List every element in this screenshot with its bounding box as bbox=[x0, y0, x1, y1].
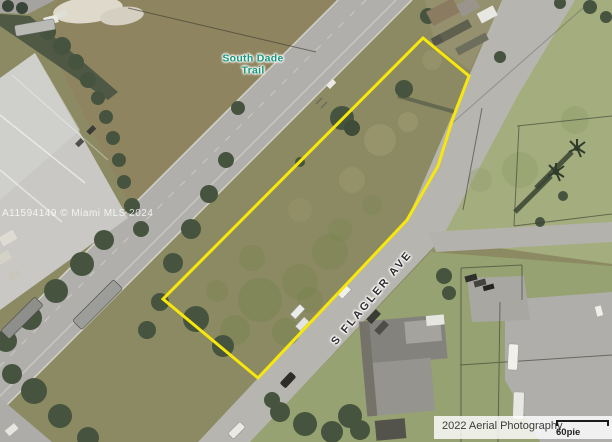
aerial-photo[interactable]: South Dade Trail S FLAGLER AVE A11594149… bbox=[0, 0, 612, 442]
scale-bar-tick-left bbox=[556, 420, 558, 426]
scale-bar bbox=[556, 420, 609, 422]
scale-bar-tick-right bbox=[607, 420, 609, 426]
aerial-scene bbox=[0, 0, 612, 442]
